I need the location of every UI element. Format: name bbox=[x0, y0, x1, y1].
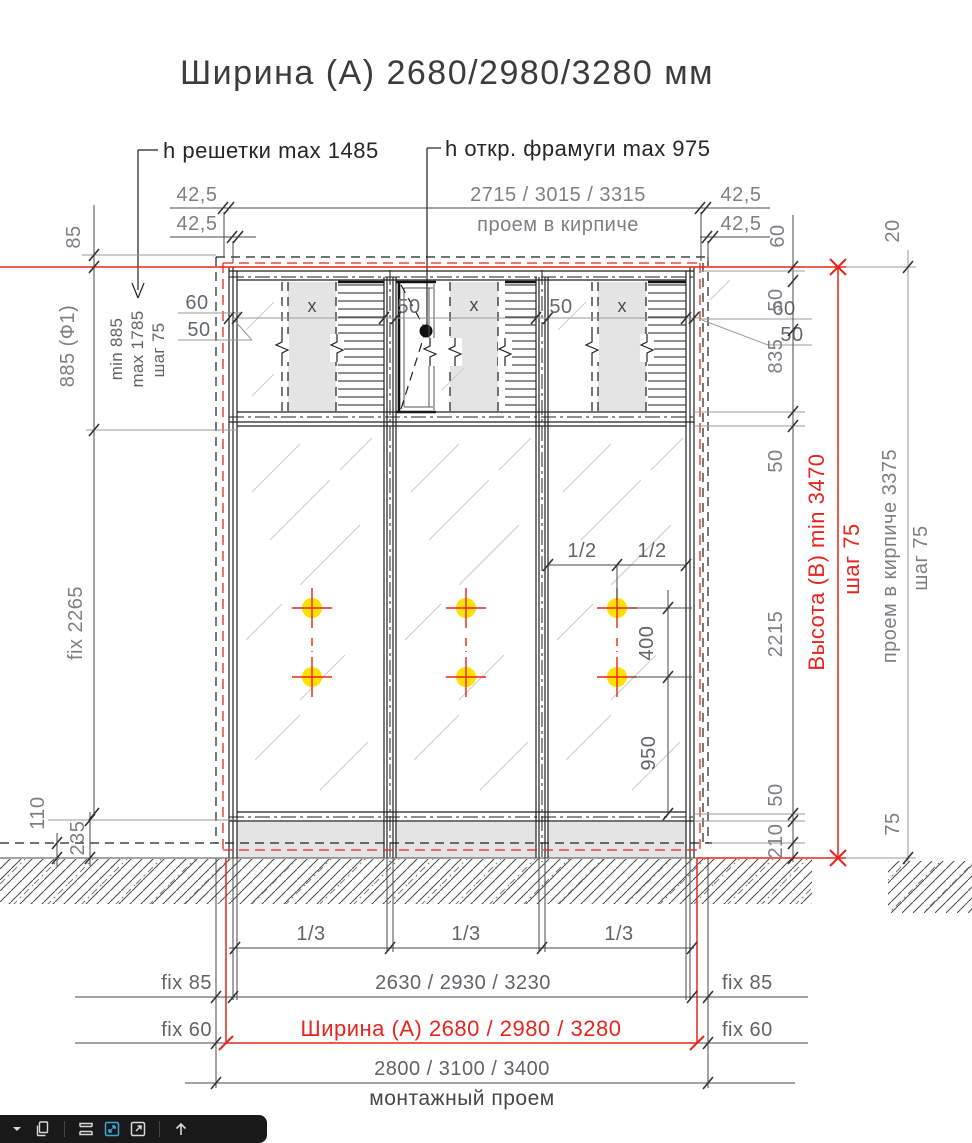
sill-panels bbox=[237, 822, 686, 858]
glass-fittings bbox=[292, 588, 637, 697]
dim-85-lintel: 85 bbox=[63, 225, 85, 248]
dim-835: 835 bbox=[765, 339, 787, 374]
fit-width-icon[interactable] bbox=[73, 1117, 99, 1141]
callout-grille-label: h решетки max 1485 bbox=[163, 138, 379, 163]
copy-pages-icon[interactable] bbox=[30, 1117, 56, 1141]
dim-fix85-right: fix 85 bbox=[722, 972, 773, 994]
dim-margin-top-left-2: 42,5 bbox=[177, 213, 218, 235]
dim-75: 75 bbox=[882, 812, 904, 835]
dim-step-75-left: шаг 75 bbox=[149, 323, 168, 378]
label-x-1: x bbox=[308, 296, 317, 316]
transom-hinge-dot bbox=[420, 325, 433, 338]
dim-half-a: 1/2 bbox=[567, 540, 596, 562]
dim-50-c: 50 bbox=[765, 783, 787, 806]
label-x-3: x bbox=[618, 296, 627, 316]
right-dimensions: 50 835 50 2215 50 210 Высота (B) min 347… bbox=[694, 215, 932, 864]
dim-50-b: 50 bbox=[765, 449, 787, 472]
upload-arrow-icon[interactable] bbox=[168, 1117, 194, 1141]
toolbar-separator bbox=[64, 1121, 65, 1137]
callout-grille: h решетки max 1485 bbox=[132, 138, 379, 298]
top-dimensions: 42,5 2715 / 3015 / 3315 42,5 42,5 проем … bbox=[63, 184, 904, 263]
dim-step-75-gray: шаг 75 bbox=[910, 525, 932, 590]
dim-fix60-left: fix 60 bbox=[161, 1019, 212, 1041]
dim-50-a: 50 bbox=[765, 288, 787, 311]
dim-400: 400 bbox=[636, 626, 658, 661]
page-title: Ширина (А) 2680/2980/3280 мм bbox=[180, 54, 714, 92]
dim-glass-width: 2630 / 2930 / 3230 bbox=[375, 972, 551, 994]
open-new-window-icon[interactable] bbox=[125, 1117, 151, 1141]
toolbar-separator bbox=[159, 1121, 160, 1137]
dim-width-a-red: Ширина (А) 2680 / 2980 / 3280 bbox=[301, 1016, 622, 1041]
dim-2215: 2215 bbox=[765, 611, 787, 658]
dim-110: 110 bbox=[27, 796, 49, 829]
red-dimension-lines bbox=[0, 259, 846, 1043]
fit-page-active-icon[interactable] bbox=[99, 1117, 125, 1141]
bottom-dimensions: 1/3 1/3 1/3 fix 85 2630 / 2930 / 3230 fi… bbox=[75, 923, 808, 1110]
dim-third-2: 1/3 bbox=[451, 923, 480, 945]
callout-transom-label: h откр. фрамуги max 975 bbox=[445, 136, 711, 161]
label-x-2: x bbox=[470, 295, 479, 315]
dropdown-caret[interactable] bbox=[4, 1117, 30, 1141]
dim-max-1785: max 1785 bbox=[128, 310, 147, 387]
dim-min-885: min 885 bbox=[107, 318, 126, 381]
dim-margin-top-right-2: 42,5 bbox=[721, 213, 762, 235]
dim-885-f1: 885 (Ф1) bbox=[57, 305, 79, 388]
dim-third-3: 1/3 bbox=[604, 923, 633, 945]
dim-brick-width: 2715 / 3015 / 3315 bbox=[470, 184, 646, 206]
dim-60-left: 60 bbox=[185, 292, 208, 314]
dim-mount-width: 2800 / 3100 / 3400 bbox=[374, 1058, 550, 1080]
dim-fix-2265: fix 2265 bbox=[65, 586, 87, 660]
dim-50-mullion-2: 50 bbox=[549, 296, 572, 318]
dim-margin-top-left-1: 42,5 bbox=[177, 184, 218, 206]
dim-fix60-right: fix 60 bbox=[722, 1019, 773, 1041]
technical-drawing: Ширина (А) 2680/2980/3280 мм h решетки m… bbox=[0, 0, 972, 1143]
dim-60-top-right: 60 bbox=[767, 224, 789, 247]
dim-fix85-left: fix 85 bbox=[161, 972, 212, 994]
dim-brick-height: проем в кирпиче 3375 bbox=[879, 449, 901, 663]
dim-950: 950 bbox=[638, 736, 660, 771]
dim-half-b: 1/2 bbox=[637, 540, 666, 562]
dim-20-corner: 20 bbox=[882, 219, 904, 242]
dim-margin-top-right-1: 42,5 bbox=[721, 184, 762, 206]
dim-210: 210 bbox=[765, 824, 787, 859]
dim-step-75-red: шаг 75 bbox=[839, 523, 864, 595]
dim-235: 235 bbox=[67, 821, 89, 856]
dim-50-mullion-1: 50 bbox=[397, 296, 420, 318]
label-brick-opening: проем в кирпиче bbox=[477, 214, 639, 236]
dim-50-left: 50 bbox=[187, 319, 210, 341]
dim-height-b-red: Высота (B) min 3470 bbox=[804, 453, 829, 670]
dim-third-1: 1/3 bbox=[296, 923, 325, 945]
pdf-viewer-toolbar bbox=[0, 1115, 267, 1143]
label-mount-opening: монтажный проем bbox=[369, 1087, 554, 1110]
drawing-page: Ширина (А) 2680/2980/3280 мм h решетки m… bbox=[0, 0, 972, 1143]
